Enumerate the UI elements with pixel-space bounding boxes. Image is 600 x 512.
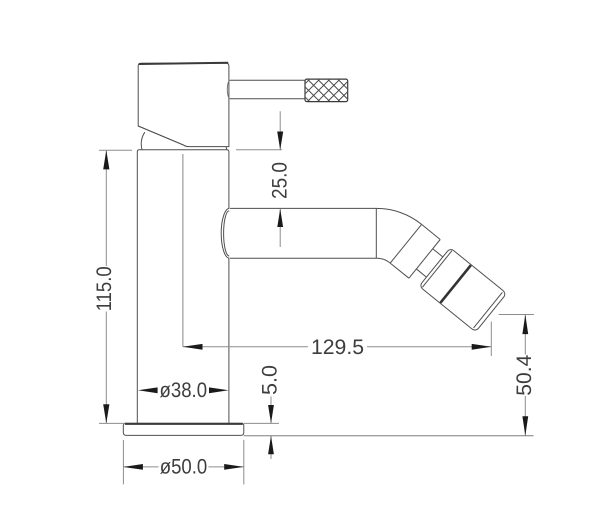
svg-text:129.5: 129.5	[311, 336, 364, 359]
svg-text:ø38.0: ø38.0	[160, 379, 208, 402]
svg-text:5.0: 5.0	[258, 365, 281, 395]
svg-text:25.0: 25.0	[269, 162, 292, 199]
svg-text:115.0: 115.0	[93, 266, 116, 311]
svg-text:ø50.0: ø50.0	[160, 455, 208, 478]
svg-text:50.4: 50.4	[513, 354, 536, 395]
